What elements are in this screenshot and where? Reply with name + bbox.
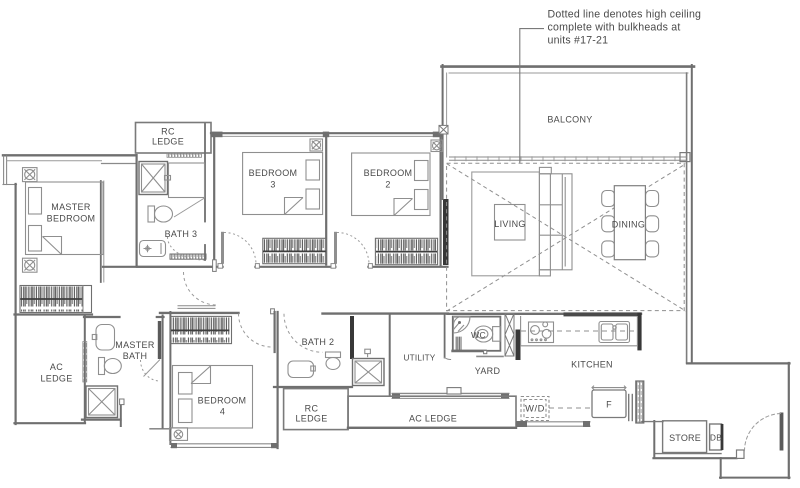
svg-text:KITCHEN: KITCHEN	[571, 360, 613, 370]
svg-text:AC: AC	[50, 362, 63, 372]
svg-text:MASTER: MASTER	[51, 202, 91, 212]
svg-text:4: 4	[220, 407, 225, 417]
svg-text:F: F	[606, 400, 612, 410]
svg-text:complete with bulkheads at: complete with bulkheads at	[548, 22, 681, 34]
svg-text:RC: RC	[305, 404, 319, 414]
svg-text:MASTER: MASTER	[115, 340, 155, 350]
svg-text:BATH 3: BATH 3	[165, 229, 198, 239]
svg-text:BEDROOM: BEDROOM	[249, 168, 298, 178]
svg-text:units #17-21: units #17-21	[548, 35, 609, 47]
svg-text:DINING: DINING	[612, 220, 645, 230]
svg-text:3: 3	[270, 180, 275, 190]
svg-text:BATH 2: BATH 2	[302, 337, 335, 347]
svg-text:YARD: YARD	[475, 366, 501, 376]
svg-text:BALCONY: BALCONY	[547, 115, 592, 125]
svg-text:AC LEDGE: AC LEDGE	[409, 414, 457, 424]
svg-text:BEDROOM: BEDROOM	[198, 396, 247, 406]
svg-text:LEDGE: LEDGE	[152, 137, 184, 147]
svg-text:BATH: BATH	[123, 351, 148, 361]
svg-text:BEDROOM: BEDROOM	[364, 168, 413, 178]
svg-text:DB: DB	[710, 434, 722, 443]
svg-text:2: 2	[385, 180, 390, 190]
svg-text:LEDGE: LEDGE	[40, 374, 72, 384]
svg-text:UTILITY: UTILITY	[404, 354, 436, 363]
svg-text:BEDROOM: BEDROOM	[47, 214, 96, 224]
svg-text:STORE: STORE	[669, 433, 701, 443]
svg-text:Dotted line denotes high ceili: Dotted line denotes high ceiling	[548, 9, 702, 21]
svg-text:LIVING: LIVING	[494, 219, 525, 229]
svg-text:RC: RC	[161, 127, 175, 137]
svg-text:W/D: W/D	[525, 403, 545, 414]
svg-text:LEDGE: LEDGE	[295, 414, 327, 424]
svg-text:WC: WC	[471, 330, 486, 340]
